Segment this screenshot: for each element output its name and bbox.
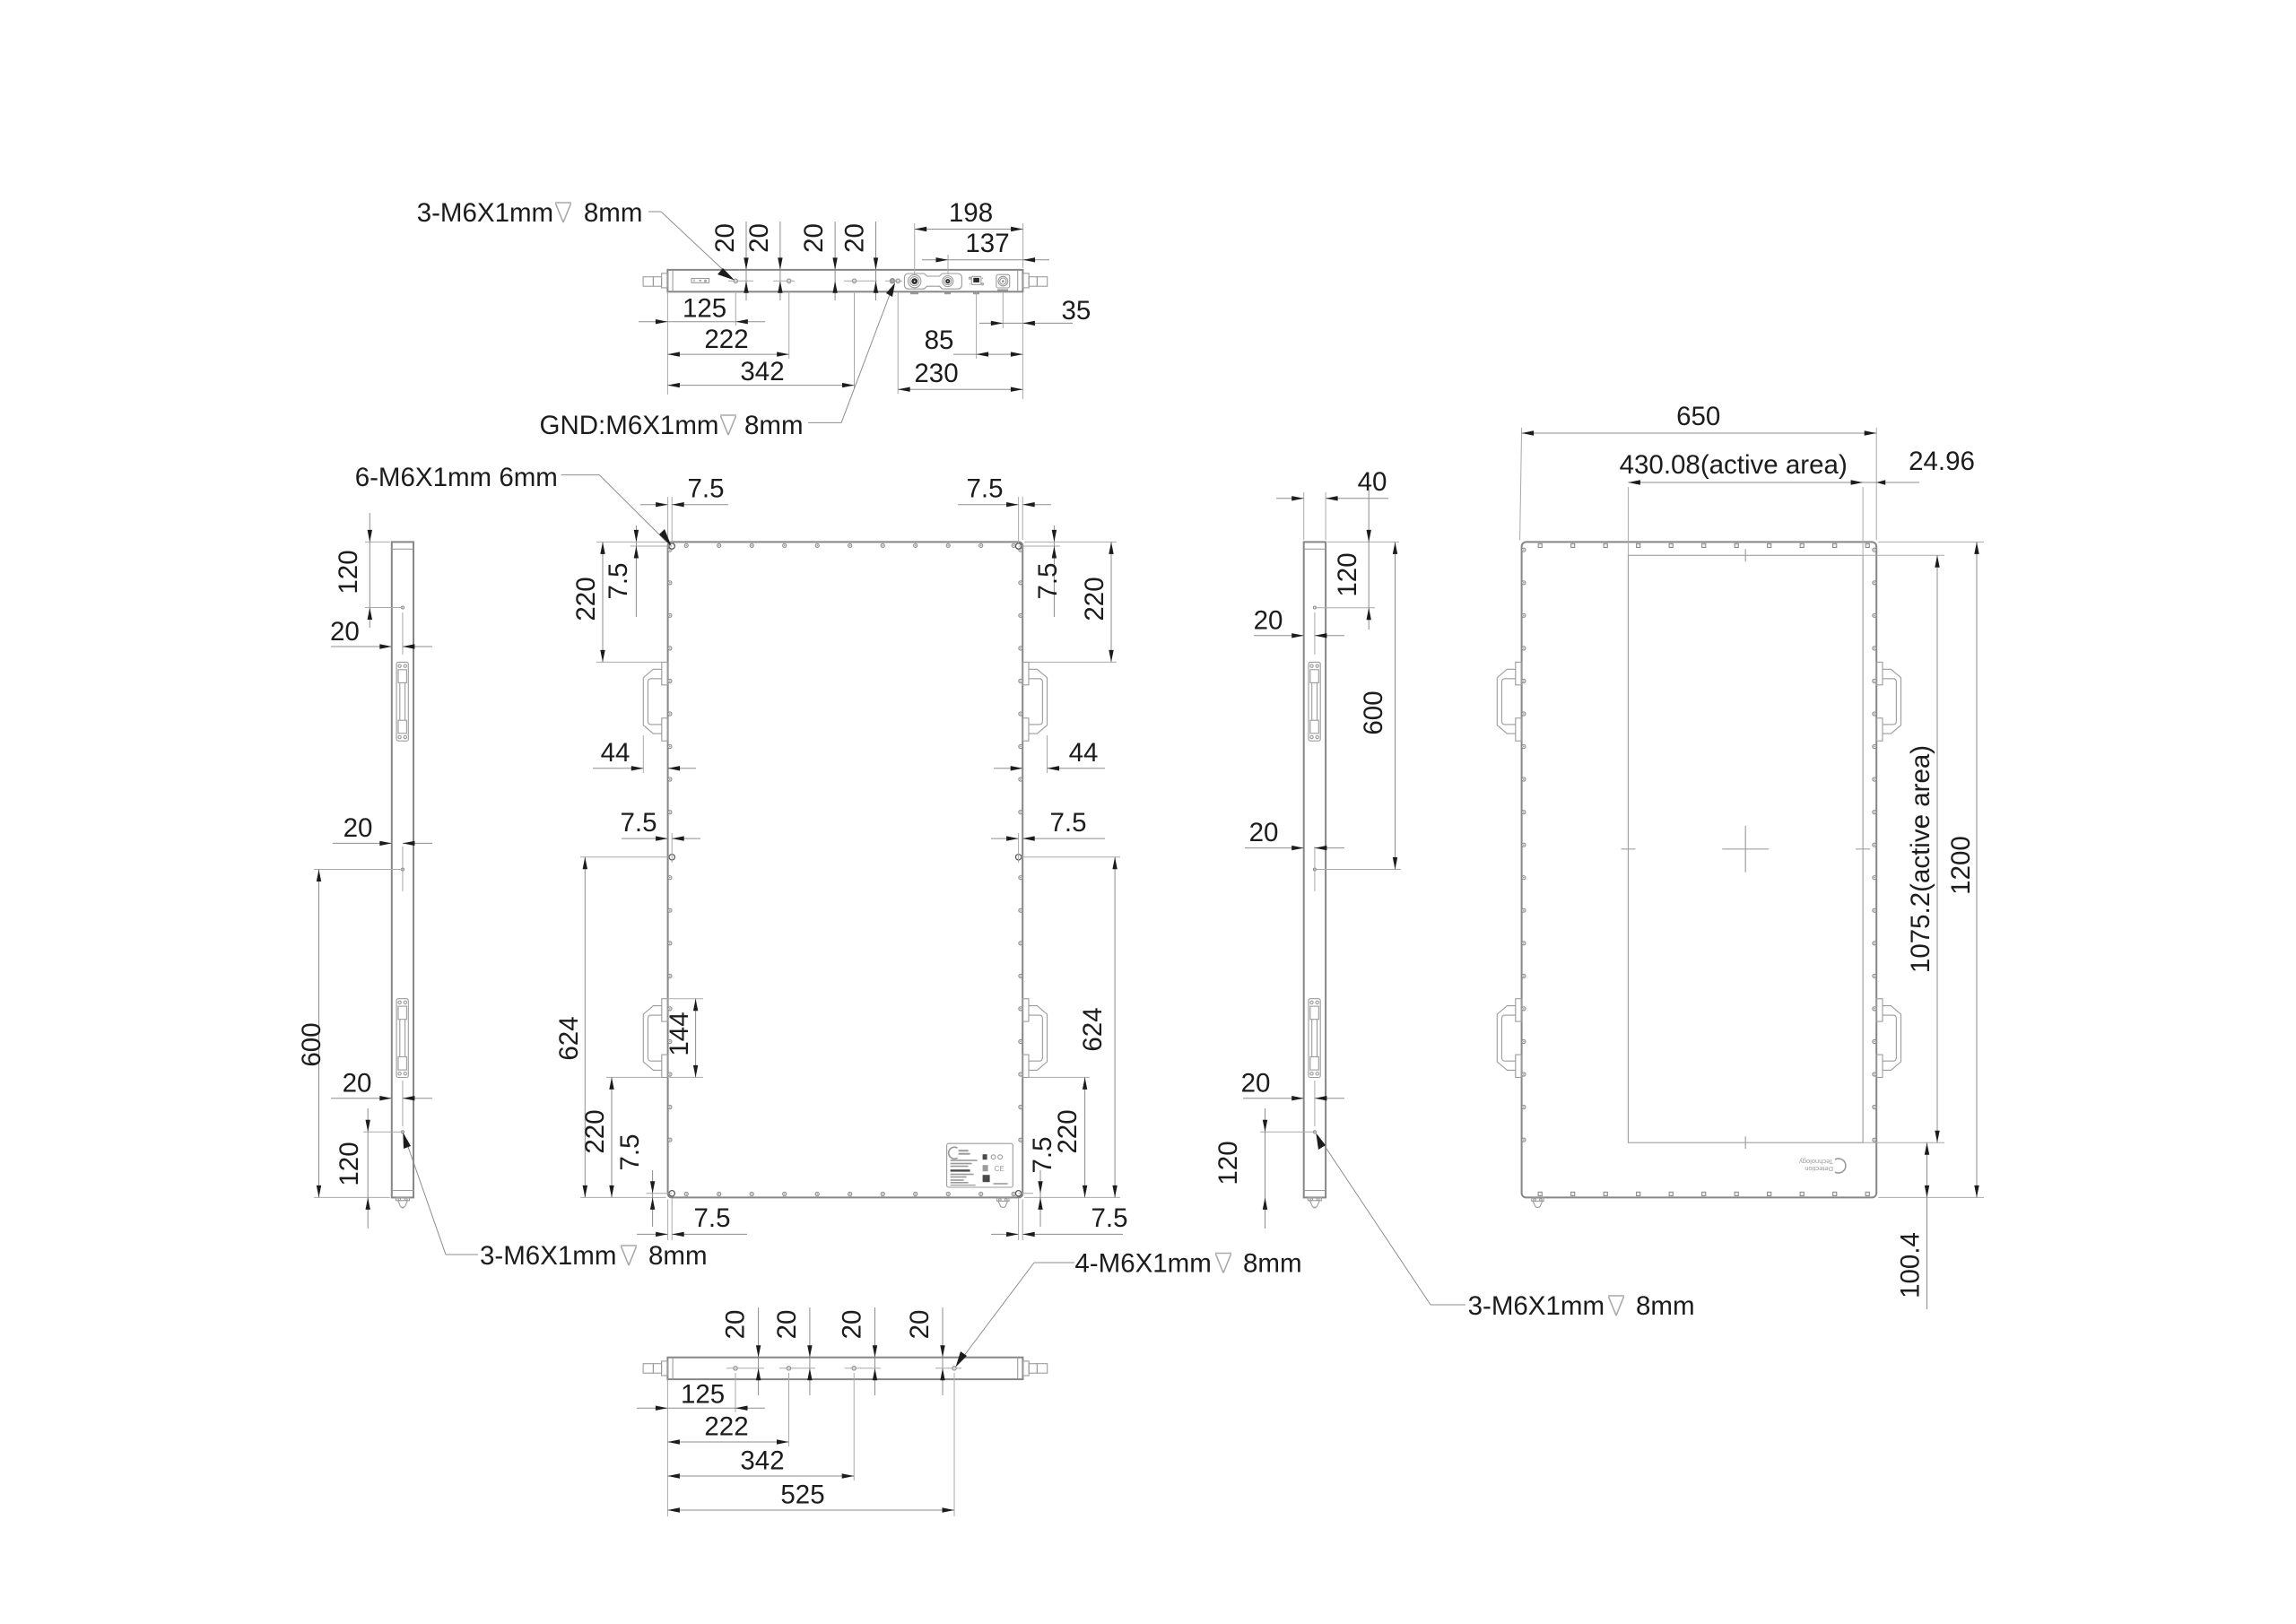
svg-text:8mm: 8mm [744,411,804,440]
svg-text:7.5: 7.5 [615,1133,645,1170]
svg-text:20: 20 [721,1310,751,1340]
svg-text:20: 20 [344,813,373,843]
svg-text:7.5: 7.5 [620,808,657,838]
svg-text:222: 222 [704,1412,748,1442]
svg-text:20: 20 [710,223,740,253]
svg-text:20: 20 [799,223,829,253]
svg-text:3-M6X1mm: 3-M6X1mm [417,198,553,228]
svg-text:120: 120 [1213,1141,1243,1185]
svg-text:120: 120 [334,550,363,594]
svg-text:125: 125 [683,294,726,324]
svg-text:7.5: 7.5 [687,474,724,504]
svg-text:525: 525 [780,1481,824,1510]
svg-text:230: 230 [914,359,958,388]
svg-text:342: 342 [740,357,784,386]
svg-text:44: 44 [1069,738,1099,768]
svg-text:198: 198 [949,198,993,228]
svg-text:624: 624 [554,1016,584,1060]
svg-text:7.5: 7.5 [966,474,1003,504]
svg-text:20: 20 [838,1310,867,1340]
svg-text:342: 342 [740,1446,784,1476]
svg-text:1200: 1200 [1946,836,1976,895]
svg-text:222: 222 [704,325,748,354]
svg-text:20: 20 [772,1310,802,1340]
svg-text:120: 120 [335,1142,364,1185]
svg-text:35: 35 [1062,296,1091,326]
svg-text:7.5: 7.5 [604,562,633,599]
svg-text:85: 85 [925,326,954,355]
svg-text:3-M6X1mm: 3-M6X1mm [1468,1291,1605,1321]
svg-text:7.5: 7.5 [1091,1203,1127,1233]
svg-text:220: 220 [580,1109,610,1153]
svg-text:44: 44 [601,738,631,768]
svg-text:3-M6X1mm: 3-M6X1mm [480,1241,616,1271]
svg-text:100.4: 100.4 [1896,1232,1926,1298]
svg-text:8mm: 8mm [584,198,643,228]
svg-text:20: 20 [1254,606,1283,636]
svg-text:125: 125 [681,1380,725,1410]
svg-text:20: 20 [1249,818,1279,847]
svg-text:600: 600 [1359,690,1388,734]
svg-text:7.5: 7.5 [693,1203,730,1233]
svg-text:20: 20 [343,1069,372,1099]
svg-text:7.5: 7.5 [1033,562,1063,599]
svg-text:20: 20 [330,617,360,647]
svg-text:CE: CE [995,1165,1004,1173]
svg-text:4-M6X1mm: 4-M6X1mm [1074,1249,1211,1279]
svg-text:137: 137 [965,229,1009,258]
svg-text:Technology: Technology [1799,1158,1833,1166]
svg-text:40: 40 [1358,467,1387,497]
svg-text:7.5: 7.5 [1028,1136,1057,1173]
svg-text:8mm: 8mm [1243,1249,1302,1279]
svg-text:20: 20 [1241,1069,1271,1099]
svg-text:1075.2(active area): 1075.2(active area) [1906,745,1935,973]
svg-text:7.5: 7.5 [1049,808,1086,838]
svg-text:20: 20 [840,223,870,253]
svg-text:624: 624 [1078,1007,1108,1051]
svg-text:GND:M6X1mm: GND:M6X1mm [540,411,719,440]
svg-text:8mm: 8mm [1636,1291,1695,1321]
svg-text:6-M6X1mm 6mm: 6-M6X1mm 6mm [355,463,558,492]
svg-text:120: 120 [1333,552,1362,596]
svg-text:144: 144 [665,1012,694,1055]
svg-text:20: 20 [744,223,774,253]
svg-text:8mm: 8mm [648,1241,708,1271]
svg-text:650: 650 [1676,402,1720,431]
svg-text:220: 220 [1080,577,1109,621]
svg-text:430.08(active area): 430.08(active area) [1620,450,1848,480]
svg-text:24.96: 24.96 [1909,447,1975,476]
svg-text:600: 600 [297,1022,326,1066]
svg-text:220: 220 [571,577,601,621]
svg-text:20: 20 [905,1310,935,1340]
